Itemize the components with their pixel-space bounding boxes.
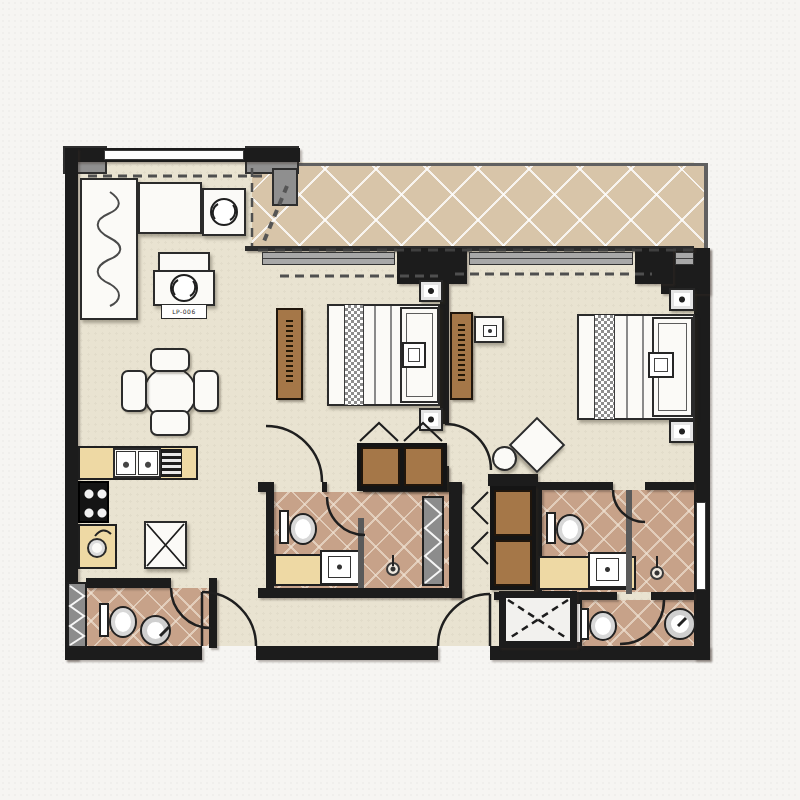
bathroom1-shower-drain [386,562,400,576]
bedroom2-bed-runner [594,315,615,419]
bedroom1-nightstand-top [419,280,443,302]
wall-corner-cap-right-leg [272,168,298,206]
coffee-table-top [158,252,210,272]
masterbath-shower-drain [650,566,664,580]
bathroom1-toilet-bowl [289,513,317,545]
balcony-sliding-window-3 [675,252,694,265]
dining-chair-bottom [150,410,190,436]
kitchen-bar-sink [87,538,107,558]
balcony-pier-2 [635,248,673,284]
living-room-window [104,150,244,160]
bedroom2-tv-box [474,316,504,343]
vent-shaft-bathroom1 [422,496,444,586]
coffee-table [153,270,215,306]
wall-bedroom1-south-b [322,482,327,492]
balcony-sliding-window-1 [262,252,395,265]
bathroom1-toilet-tank [279,510,289,544]
guestbath-toilet-tank [580,608,589,640]
bedroom2-bedside-table [648,352,674,378]
masterbath-partition [626,490,632,594]
bedroom1-wardrobe-door2 [404,447,443,486]
kitchen-dish-drainer [161,449,182,477]
wall-powder-east [209,578,217,648]
powder-basin [140,615,171,646]
wall-wardrobe2-cap [488,474,538,486]
wall-bathroom1-west [266,482,274,594]
dining-chair-top [150,348,190,372]
bedroom2-stool [492,446,517,471]
bedroom2-tv-icon [483,325,497,337]
bathroom1-sink [320,550,360,585]
bedroom1-dresser-detail [286,320,293,382]
balcony-sliding-window-2 [469,252,633,265]
bathroom1-partition [358,518,364,588]
dining-chair-right [193,370,219,412]
balcony-floor [252,166,704,250]
bedroom2-nightstand-top [669,288,695,311]
kitchen-washer [144,521,187,569]
bedroom1-nightstand-bottom [419,408,443,431]
kitchen-sink-basin-1 [116,451,136,475]
armchair-side-table [202,188,246,236]
vent-shaft-left [67,582,87,648]
bedroom1-wardrobe-door1 [361,447,400,486]
wall-hall-east [449,482,462,598]
wall-bottom-2 [256,646,438,660]
wall-right [694,248,710,660]
bedroom1-bed-runner [344,305,364,405]
bedroom2-wardrobe-door2 [494,540,532,586]
wall-bottom-3 [490,646,710,660]
powder-toilet-tank [99,603,109,637]
coffee-table-label: LP-006 [161,304,207,319]
guestbath-toilet-bowl [589,611,617,641]
guestbath-basin [664,608,696,640]
duct-shaft-interior [506,598,570,641]
bedroom2-dresser-detail [458,324,465,384]
bedroom2-nightstand-bottom [669,420,695,443]
wall-bathroom1-south [258,588,462,598]
powder-toilet-bowl [109,606,137,638]
masterbath-sink [588,552,628,588]
balcony-wall-base [245,246,694,251]
wall-masterbath-north-a [534,482,613,490]
bedroom2-bed-fold2 [642,316,644,418]
kitchen-sink-basin-2 [138,451,158,475]
masterbath-window [696,502,706,590]
unit-label-text: LP-006 [172,308,195,315]
wall-bedroom1-south-a [258,482,266,492]
bedroom1-bed-fold2 [390,306,392,404]
wall-masterbath-south-b [651,592,694,600]
bedroom2-bed-fold1 [626,316,628,418]
sofa-vertical [80,178,138,320]
masterbath-toilet-bowl [556,514,584,545]
kitchen-stove [78,481,109,523]
dining-chair-left [121,370,147,412]
balcony-pier-1 [397,248,467,284]
bedroom2-wardrobe-door1 [494,490,532,536]
sofa-horizontal [138,182,202,234]
bedroom1-bedside-table [402,342,426,368]
floor-plan-canvas: LP-006 [0,0,800,800]
masterbath-toilet-tank [546,512,556,544]
wall-masterbath-north-b [645,482,694,490]
bedroom1-bed-fold1 [374,306,376,404]
wall-bottom-1 [65,646,202,660]
wall-powder-north [86,578,171,588]
wall-between-bedrooms [440,284,449,424]
